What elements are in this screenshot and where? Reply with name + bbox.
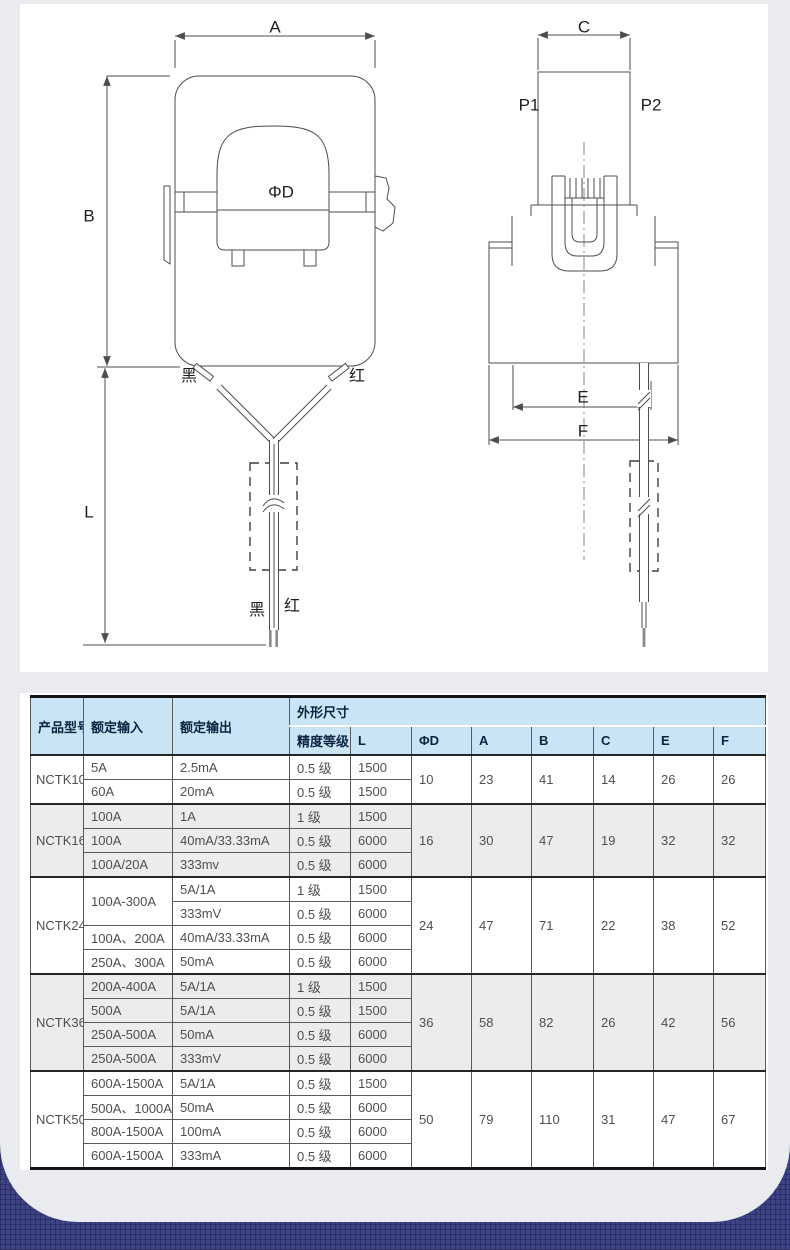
col-header-rated-input: 额定输入 xyxy=(84,697,173,756)
spec-output: 20mA xyxy=(173,780,290,805)
wire-label-red-top: 红 xyxy=(349,369,365,385)
col-header-f: F xyxy=(714,726,766,755)
spec-output: 5A/1A xyxy=(173,1071,290,1096)
spec-dim-phid: 36 xyxy=(412,974,472,1071)
spec-accuracy: 0.5 级 xyxy=(290,926,351,950)
spec-dim-c: 19 xyxy=(594,804,654,877)
dim-label-f: F xyxy=(578,423,588,440)
spec-accuracy: 1 级 xyxy=(290,974,351,999)
col-header-length: L xyxy=(351,726,412,755)
dim-label-phid: ΦD xyxy=(268,184,294,201)
spec-dim-phid: 50 xyxy=(412,1071,472,1169)
spec-input: 100A、200A xyxy=(84,926,173,950)
spec-accuracy: 1 级 xyxy=(290,877,351,902)
dim-label-b: B xyxy=(83,208,94,225)
spec-row: NCTK16100A1A1 级1500163047193232 xyxy=(31,804,766,829)
spec-accuracy: 0.5 级 xyxy=(290,780,351,805)
col-header-rated-output: 额定输出 xyxy=(173,697,290,756)
spec-dim-a: 23 xyxy=(472,755,532,804)
col-header-accuracy: 精度等级 xyxy=(290,726,351,755)
spec-accuracy: 0.5 级 xyxy=(290,755,351,780)
spec-length: 1500 xyxy=(351,755,412,780)
spec-length: 1500 xyxy=(351,804,412,829)
spec-length: 6000 xyxy=(351,829,412,853)
dim-label-a: A xyxy=(269,19,280,36)
spec-table-body: NCTK105A2.5mA0.5 级150010234114262660A20m… xyxy=(31,755,766,1169)
content-card: A B ΦD 黑 红 L 黑 红 C P1 P2 E F 产品型号 额定输入 额… xyxy=(0,0,790,1222)
spec-accuracy: 0.5 级 xyxy=(290,1071,351,1096)
spec-length: 1500 xyxy=(351,780,412,805)
spec-model: NCTK24 xyxy=(31,877,84,974)
spec-dim-phid: 16 xyxy=(412,804,472,877)
spec-model: NCTK10 xyxy=(31,755,84,804)
spec-row: NCTK36200A-400A5A/1A1 级1500365882264256 xyxy=(31,974,766,999)
spec-accuracy: 0.5 级 xyxy=(290,902,351,926)
spec-length: 6000 xyxy=(351,1144,412,1169)
spec-dim-b: 41 xyxy=(532,755,594,804)
spec-accuracy: 0.5 级 xyxy=(290,829,351,853)
spec-dim-e: 26 xyxy=(654,755,714,804)
spec-output: 333mV xyxy=(173,902,290,926)
spec-output: 333mV xyxy=(173,1047,290,1072)
spec-accuracy: 0.5 级 xyxy=(290,950,351,975)
spec-dim-f: 52 xyxy=(714,877,766,974)
spec-dim-f: 67 xyxy=(714,1071,766,1169)
spec-input: 250A-500A xyxy=(84,1023,173,1047)
spec-output: 5A/1A xyxy=(173,877,290,902)
spec-input: 100A xyxy=(84,804,173,829)
spec-model: NCTK16 xyxy=(31,804,84,877)
spec-output: 1A xyxy=(173,804,290,829)
wire-label-red-bottom: 红 xyxy=(284,599,300,615)
label-p2: P2 xyxy=(641,97,662,114)
spec-dim-f: 32 xyxy=(714,804,766,877)
spec-accuracy: 0.5 级 xyxy=(290,853,351,878)
spec-output: 50mA xyxy=(173,1096,290,1120)
spec-input: 100A/20A xyxy=(84,853,173,878)
spec-length: 6000 xyxy=(351,1096,412,1120)
spec-input: 500A xyxy=(84,999,173,1023)
spec-input: 5A xyxy=(84,755,173,780)
spec-dim-a: 58 xyxy=(472,974,532,1071)
spec-input: 250A、300A xyxy=(84,950,173,975)
spec-length: 6000 xyxy=(351,1047,412,1072)
spec-dim-e: 42 xyxy=(654,974,714,1071)
spec-accuracy: 0.5 级 xyxy=(290,1023,351,1047)
spec-length: 6000 xyxy=(351,853,412,878)
dim-label-e: E xyxy=(577,389,588,406)
spec-accuracy: 0.5 级 xyxy=(290,1120,351,1144)
spec-output: 100mA xyxy=(173,1120,290,1144)
spec-dim-f: 56 xyxy=(714,974,766,1071)
col-header-model: 产品型号 xyxy=(31,697,84,756)
spec-dim-e: 32 xyxy=(654,804,714,877)
col-header-a: A xyxy=(472,726,532,755)
spec-model: NCTK50 xyxy=(31,1071,84,1169)
spec-accuracy: 0.5 级 xyxy=(290,1144,351,1169)
wire-label-black-bottom: 黑 xyxy=(249,603,265,619)
spec-accuracy: 0.5 级 xyxy=(290,1047,351,1072)
spec-row: NCTK105A2.5mA0.5 级1500102341142626 xyxy=(31,755,766,780)
label-p1: P1 xyxy=(519,97,540,114)
side-view-drawing xyxy=(489,35,678,647)
spec-input: 100A-300A xyxy=(84,877,173,926)
spec-dim-a: 47 xyxy=(472,877,532,974)
spec-dim-c: 26 xyxy=(594,974,654,1071)
dim-label-c: C xyxy=(578,19,590,36)
spec-dim-a: 79 xyxy=(472,1071,532,1169)
spec-output: 40mA/33.33mA xyxy=(173,829,290,853)
spec-input: 100A xyxy=(84,829,173,853)
spec-length: 1500 xyxy=(351,877,412,902)
spec-panel: 产品型号 额定输入 额定输出 外形尺寸 精度等级 L ΦD A B C E F … xyxy=(20,693,768,1170)
spec-dim-c: 14 xyxy=(594,755,654,804)
spec-accuracy: 0.5 级 xyxy=(290,1096,351,1120)
spec-dim-b: 82 xyxy=(532,974,594,1071)
spec-input: 200A-400A xyxy=(84,974,173,999)
spec-input: 800A-1500A xyxy=(84,1120,173,1144)
spec-length: 6000 xyxy=(351,1023,412,1047)
spec-output: 5A/1A xyxy=(173,974,290,999)
spec-length: 6000 xyxy=(351,902,412,926)
spec-length: 6000 xyxy=(351,1120,412,1144)
spec-output: 50mA xyxy=(173,1023,290,1047)
technical-drawing-panel: A B ΦD 黑 红 L 黑 红 C P1 P2 E F xyxy=(20,4,768,672)
spec-length: 1500 xyxy=(351,974,412,999)
spec-output: 5A/1A xyxy=(173,999,290,1023)
spec-dim-b: 71 xyxy=(532,877,594,974)
spec-output: 50mA xyxy=(173,950,290,975)
spec-dim-c: 31 xyxy=(594,1071,654,1169)
spec-length: 1500 xyxy=(351,999,412,1023)
spec-dim-f: 26 xyxy=(714,755,766,804)
spec-dim-a: 30 xyxy=(472,804,532,877)
spec-dim-b: 47 xyxy=(532,804,594,877)
spec-input: 500A、1000A xyxy=(84,1096,173,1120)
spec-dim-c: 22 xyxy=(594,877,654,974)
col-header-e: E xyxy=(654,726,714,755)
col-header-b: B xyxy=(532,726,594,755)
spec-length: 6000 xyxy=(351,926,412,950)
spec-output: 333mA xyxy=(173,1144,290,1169)
spec-table: 产品型号 额定输入 额定输出 外形尺寸 精度等级 L ΦD A B C E F … xyxy=(30,695,766,1170)
spec-length: 6000 xyxy=(351,950,412,975)
spec-output: 40mA/33.33mA xyxy=(173,926,290,950)
spec-accuracy: 0.5 级 xyxy=(290,999,351,1023)
spec-dim-e: 47 xyxy=(654,1071,714,1169)
col-header-c: C xyxy=(594,726,654,755)
spec-accuracy: 1 级 xyxy=(290,804,351,829)
spec-model: NCTK36 xyxy=(31,974,84,1071)
dim-label-l: L xyxy=(84,504,93,521)
spec-row: NCTK50600A-1500A5A/1A0.5 级15005079110314… xyxy=(31,1071,766,1096)
spec-dim-b: 110 xyxy=(532,1071,594,1169)
spec-input: 600A-1500A xyxy=(84,1144,173,1169)
spec-dim-phid: 10 xyxy=(412,755,472,804)
spec-input: 60A xyxy=(84,780,173,805)
spec-dim-phid: 24 xyxy=(412,877,472,974)
col-header-phid: ΦD xyxy=(412,726,472,755)
spec-dim-e: 38 xyxy=(654,877,714,974)
spec-length: 1500 xyxy=(351,1071,412,1096)
spec-output: 333mv xyxy=(173,853,290,878)
front-view-drawing xyxy=(83,36,395,647)
spec-input: 250A-500A xyxy=(84,1047,173,1072)
spec-row: NCTK24100A-300A5A/1A1 级1500244771223852 xyxy=(31,877,766,902)
wire-label-black-top: 黑 xyxy=(181,369,197,385)
spec-output: 2.5mA xyxy=(173,755,290,780)
col-header-dimensions-group: 外形尺寸 xyxy=(290,697,766,727)
spec-input: 600A-1500A xyxy=(84,1071,173,1096)
